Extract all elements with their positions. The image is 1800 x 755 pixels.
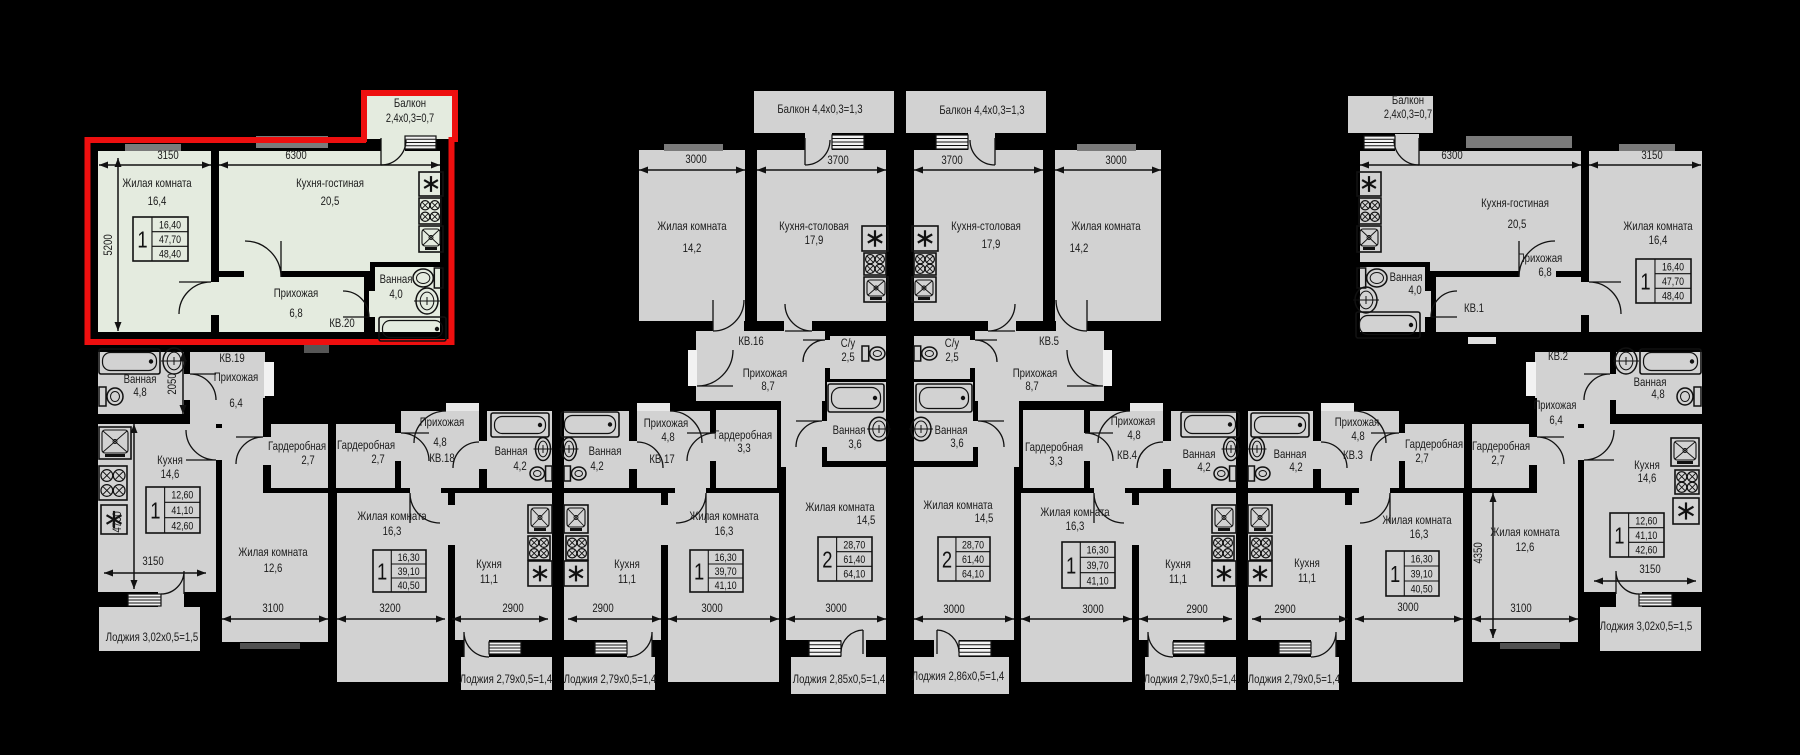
svg-text:48,40: 48,40 (1662, 291, 1684, 303)
svg-text:42,60: 42,60 (171, 520, 193, 532)
svg-text:16,3: 16,3 (383, 525, 402, 538)
svg-text:4,8: 4,8 (1351, 430, 1364, 443)
svg-text:2,7: 2,7 (1491, 454, 1504, 467)
svg-text:6,4: 6,4 (1549, 414, 1562, 427)
svg-text:28,70: 28,70 (962, 539, 984, 551)
svg-text:4,0: 4,0 (1408, 284, 1421, 297)
svg-text:Жилая комната: Жилая комната (1040, 506, 1110, 519)
svg-text:Прихожая: Прихожая (1111, 415, 1156, 428)
svg-text:3100: 3100 (1510, 602, 1531, 615)
svg-text:2,5: 2,5 (945, 351, 958, 364)
svg-text:12,60: 12,60 (171, 490, 193, 502)
svg-text:5200: 5200 (102, 234, 115, 255)
svg-text:11,1: 11,1 (480, 573, 498, 586)
svg-text:Кухня: Кухня (1294, 557, 1320, 570)
svg-text:КВ.1: КВ.1 (1464, 302, 1484, 315)
svg-text:1: 1 (1614, 523, 1624, 548)
svg-text:Кухня: Кухня (476, 558, 502, 571)
svg-text:Ванная: Ванная (380, 273, 413, 286)
svg-text:КВ.17: КВ.17 (649, 453, 674, 466)
svg-text:Ванная: Ванная (1183, 448, 1216, 461)
svg-text:12,60: 12,60 (1635, 515, 1657, 527)
svg-text:42,60: 42,60 (1635, 545, 1657, 557)
svg-text:6300: 6300 (285, 149, 306, 162)
svg-text:Жилая комната: Жилая комната (238, 546, 308, 559)
svg-text:Жилая комната: Жилая комната (689, 510, 759, 523)
svg-text:4,8: 4,8 (433, 436, 446, 449)
svg-text:39,10: 39,10 (1411, 569, 1433, 581)
svg-text:12,6: 12,6 (264, 562, 283, 575)
svg-text:2900: 2900 (1274, 603, 1295, 616)
svg-text:2,4х0,3=0,7: 2,4х0,3=0,7 (1384, 109, 1432, 121)
svg-text:Прихожая: Прихожая (1335, 416, 1380, 429)
svg-text:16,30: 16,30 (715, 552, 737, 564)
svg-text:4,2: 4,2 (590, 460, 603, 473)
svg-text:1: 1 (150, 498, 160, 523)
svg-text:41,10: 41,10 (715, 580, 737, 592)
svg-text:4750: 4750 (111, 511, 124, 532)
svg-text:Балкон: Балкон (394, 97, 426, 110)
svg-text:Жилая комната: Жилая комната (805, 501, 875, 514)
svg-text:6,8: 6,8 (1538, 266, 1551, 279)
svg-text:1: 1 (1390, 562, 1400, 587)
svg-text:Ванная: Ванная (124, 373, 157, 386)
svg-text:17,9: 17,9 (982, 238, 1001, 251)
svg-text:Прихожая: Прихожая (644, 417, 689, 430)
svg-text:Балкон 4,4х0,3=1,3: Балкон 4,4х0,3=1,3 (777, 103, 862, 116)
svg-text:Лоджия 2,79х0,5=1,4: Лоджия 2,79х0,5=1,4 (1248, 673, 1340, 686)
svg-text:КВ.18: КВ.18 (429, 452, 454, 465)
svg-text:1: 1 (694, 559, 704, 584)
svg-text:3100: 3100 (262, 602, 283, 615)
svg-text:Кухня: Кухня (157, 454, 183, 467)
svg-text:64,10: 64,10 (962, 569, 984, 581)
svg-text:Ванная: Ванная (1390, 271, 1423, 284)
svg-text:Ванная: Ванная (833, 424, 866, 437)
svg-text:Жилая комната: Жилая комната (1382, 514, 1452, 527)
svg-text:Жилая комната: Жилая комната (357, 510, 427, 523)
svg-text:Прихожая: Прихожая (214, 371, 259, 384)
svg-text:КВ.4: КВ.4 (1117, 449, 1137, 462)
svg-text:1: 1 (1640, 269, 1650, 294)
svg-text:Кухня-гостиная: Кухня-гостиная (296, 177, 364, 190)
svg-text:3150: 3150 (142, 555, 163, 568)
svg-text:16,3: 16,3 (1066, 520, 1085, 533)
svg-text:3200: 3200 (379, 602, 400, 615)
svg-text:Балкон: Балкон (1392, 94, 1424, 107)
svg-text:41,10: 41,10 (171, 505, 193, 517)
svg-text:Гардеробная: Гардеробная (1472, 440, 1530, 453)
svg-text:16,4: 16,4 (148, 195, 167, 208)
svg-text:39,10: 39,10 (398, 566, 420, 578)
svg-text:64,10: 64,10 (843, 569, 865, 581)
svg-text:3000: 3000 (1082, 603, 1103, 616)
svg-text:Прихожая: Прихожая (1013, 367, 1058, 380)
svg-text:Ванная: Ванная (935, 424, 968, 437)
svg-text:1: 1 (137, 227, 147, 252)
svg-text:Прихожая: Прихожая (1534, 400, 1577, 412)
svg-text:Прихожая: Прихожая (1518, 252, 1563, 265)
svg-text:Ванная: Ванная (495, 445, 528, 458)
svg-text:Кухня: Кухня (614, 558, 640, 571)
svg-text:Кухня-столовая: Кухня-столовая (951, 220, 1021, 233)
svg-text:С/у: С/у (841, 337, 856, 350)
svg-text:14,2: 14,2 (1070, 242, 1089, 255)
svg-text:Гардеробная: Гардеробная (1405, 438, 1463, 451)
svg-text:2,7: 2,7 (1415, 452, 1428, 465)
svg-text:Жилая комната: Жилая комната (1490, 526, 1560, 539)
svg-text:Лоджия 3,02х0,5=1,5: Лоджия 3,02х0,5=1,5 (106, 631, 198, 644)
svg-text:47,70: 47,70 (159, 234, 181, 246)
svg-text:2: 2 (942, 547, 952, 572)
svg-text:14,6: 14,6 (161, 468, 180, 481)
svg-text:Кухня: Кухня (1165, 558, 1191, 571)
svg-text:61,40: 61,40 (962, 554, 984, 566)
svg-text:2: 2 (822, 547, 832, 572)
svg-text:20,5: 20,5 (1508, 218, 1527, 231)
svg-text:Лоджия 2,79х0,5=1,4: Лоджия 2,79х0,5=1,4 (460, 673, 552, 686)
svg-text:6,8: 6,8 (289, 307, 302, 320)
svg-text:6,4: 6,4 (229, 397, 242, 410)
svg-text:Лоджия 2,79х0,5=1,4: Лоджия 2,79х0,5=1,4 (564, 673, 656, 686)
svg-text:Жилая комната: Жилая комната (923, 499, 993, 512)
svg-text:2900: 2900 (1186, 603, 1207, 616)
svg-text:41,10: 41,10 (1087, 575, 1109, 587)
svg-text:2900: 2900 (502, 602, 523, 615)
svg-text:12,6: 12,6 (1516, 541, 1535, 554)
svg-text:11,1: 11,1 (1298, 572, 1316, 585)
svg-text:17,9: 17,9 (805, 234, 824, 247)
svg-text:8,7: 8,7 (761, 380, 774, 393)
svg-text:61,40: 61,40 (843, 554, 865, 566)
svg-text:16,30: 16,30 (398, 552, 420, 564)
svg-text:2,7: 2,7 (371, 453, 384, 466)
svg-text:3000: 3000 (943, 603, 964, 616)
svg-text:3,6: 3,6 (950, 437, 963, 450)
svg-text:16,30: 16,30 (1087, 545, 1109, 557)
svg-text:3150: 3150 (1641, 149, 1662, 162)
svg-text:2,5: 2,5 (841, 351, 854, 364)
svg-text:14,5: 14,5 (857, 514, 876, 527)
svg-text:КВ.5: КВ.5 (1039, 335, 1059, 348)
svg-text:16,40: 16,40 (159, 219, 181, 231)
svg-text:2,4х0,3=0,7: 2,4х0,3=0,7 (386, 113, 434, 125)
svg-text:4,2: 4,2 (1289, 461, 1302, 474)
svg-text:КВ.16: КВ.16 (738, 335, 763, 348)
svg-text:47,70: 47,70 (1662, 276, 1684, 288)
svg-text:КВ.3: КВ.3 (1343, 449, 1363, 462)
svg-text:3150: 3150 (157, 149, 178, 162)
svg-text:3000: 3000 (825, 602, 846, 615)
svg-text:Прихожая: Прихожая (274, 287, 319, 300)
svg-text:16,3: 16,3 (1410, 528, 1429, 541)
svg-text:3000: 3000 (1397, 601, 1418, 614)
svg-text:Кухня-гостиная: Кухня-гостиная (1481, 197, 1549, 210)
svg-text:Лоджия 2,86х0,5=1,4: Лоджия 2,86х0,5=1,4 (912, 670, 1004, 683)
svg-text:3700: 3700 (941, 154, 962, 167)
svg-text:11,1: 11,1 (618, 573, 636, 586)
svg-text:1: 1 (377, 559, 387, 584)
svg-text:Прихожая: Прихожая (420, 416, 465, 429)
svg-text:КВ.2: КВ.2 (1548, 350, 1568, 363)
svg-text:Лоджия 2,85х0,5=1,4: Лоджия 2,85х0,5=1,4 (793, 673, 885, 686)
svg-text:Жилая комната: Жилая комната (122, 177, 192, 190)
svg-text:11,1: 11,1 (1169, 573, 1187, 586)
svg-text:14,5: 14,5 (975, 512, 994, 525)
svg-text:КВ.19: КВ.19 (219, 352, 244, 365)
svg-text:1: 1 (1066, 553, 1076, 578)
svg-text:39,70: 39,70 (715, 566, 737, 578)
svg-text:Гардеробная: Гардеробная (337, 439, 395, 452)
svg-text:4,2: 4,2 (513, 460, 526, 473)
svg-text:4,8: 4,8 (133, 386, 146, 399)
svg-text:С/у: С/у (945, 337, 960, 350)
svg-text:Лоджия 2,79х0,5=1,4: Лоджия 2,79х0,5=1,4 (1144, 673, 1236, 686)
svg-text:2050: 2050 (166, 373, 179, 394)
svg-text:3,3: 3,3 (737, 442, 750, 455)
svg-text:20,5: 20,5 (321, 195, 340, 208)
svg-text:4,8: 4,8 (1651, 388, 1664, 401)
svg-text:3,3: 3,3 (1049, 455, 1062, 468)
svg-text:4350: 4350 (1472, 542, 1485, 563)
svg-text:Гардеробная: Гардеробная (268, 440, 326, 453)
svg-text:28,70: 28,70 (843, 539, 865, 551)
svg-text:Лоджия 3,02х0,5=1,5: Лоджия 3,02х0,5=1,5 (1600, 620, 1692, 633)
svg-text:КВ.20: КВ.20 (329, 317, 354, 330)
svg-text:Прихожая: Прихожая (743, 367, 788, 380)
svg-text:Кухня-столовая: Кухня-столовая (779, 220, 849, 233)
svg-text:16,40: 16,40 (1662, 261, 1684, 273)
svg-text:Жилая комната: Жилая комната (657, 220, 727, 233)
svg-text:16,3: 16,3 (715, 525, 734, 538)
svg-text:48,40: 48,40 (159, 249, 181, 261)
svg-text:2900: 2900 (592, 602, 613, 615)
svg-text:Жилая комната: Жилая комната (1623, 220, 1693, 233)
svg-text:3150: 3150 (1639, 563, 1660, 576)
svg-text:3700: 3700 (827, 154, 848, 167)
svg-text:6300: 6300 (1441, 149, 1462, 162)
svg-text:2,7: 2,7 (301, 454, 314, 467)
svg-text:3000: 3000 (701, 602, 722, 615)
svg-text:41,10: 41,10 (1635, 530, 1657, 542)
svg-text:Ванная: Ванная (1274, 448, 1307, 461)
svg-text:8,7: 8,7 (1025, 380, 1038, 393)
svg-text:3000: 3000 (1105, 154, 1126, 167)
svg-text:40,50: 40,50 (1411, 584, 1433, 596)
svg-text:Кухня: Кухня (1634, 459, 1660, 472)
svg-text:Жилая комната: Жилая комната (1071, 220, 1141, 233)
svg-text:Гардеробная: Гардеробная (714, 429, 772, 442)
svg-text:40,50: 40,50 (398, 580, 420, 592)
svg-text:Балкон 4,4х0,3=1,3: Балкон 4,4х0,3=1,3 (939, 104, 1024, 117)
svg-text:14,2: 14,2 (683, 242, 702, 255)
svg-text:16,30: 16,30 (1411, 554, 1433, 566)
svg-text:4,8: 4,8 (1127, 429, 1140, 442)
svg-text:Ванная: Ванная (589, 445, 622, 458)
svg-text:4,0: 4,0 (389, 288, 402, 301)
svg-text:3,6: 3,6 (848, 438, 861, 451)
svg-text:3000: 3000 (685, 153, 706, 166)
svg-text:16,4: 16,4 (1649, 234, 1668, 247)
svg-text:4,2: 4,2 (1197, 461, 1210, 474)
svg-text:14,6: 14,6 (1638, 472, 1657, 485)
svg-text:39,70: 39,70 (1087, 560, 1109, 572)
svg-text:4,8: 4,8 (661, 431, 674, 444)
svg-text:Гардеробная: Гардеробная (1025, 441, 1083, 454)
